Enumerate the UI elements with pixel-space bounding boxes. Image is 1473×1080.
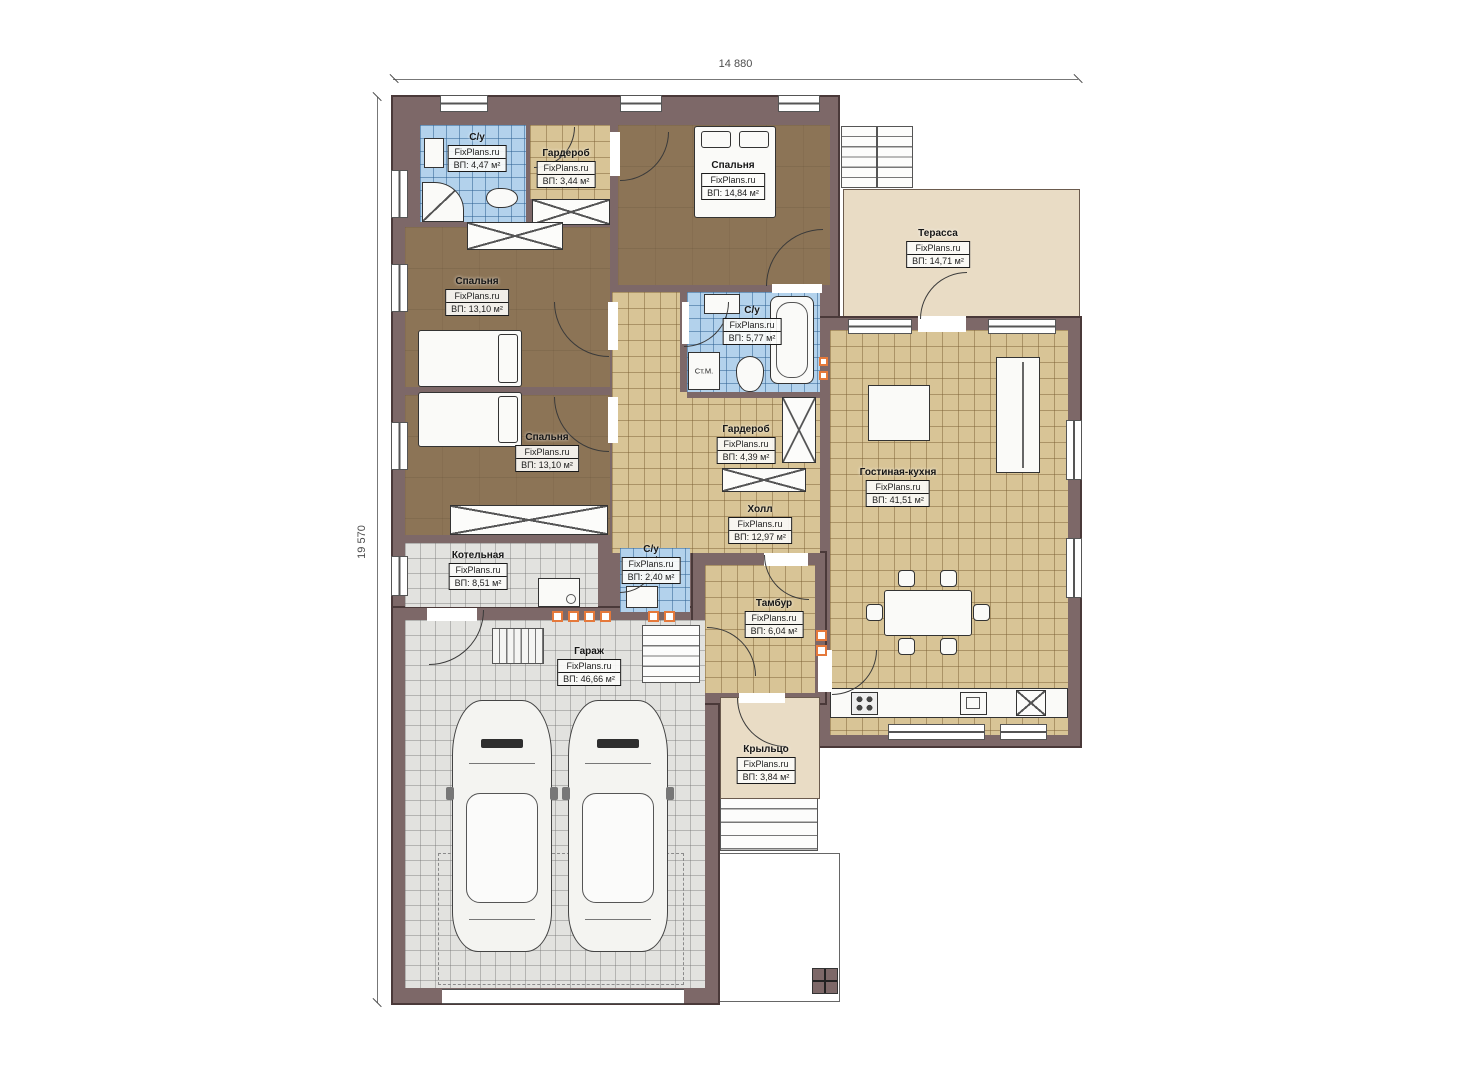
door-opening [610,132,620,176]
floor-plan-canvas: 14 880 19 570 [0,0,1473,1080]
watermark: FixPlans.ru [729,518,791,531]
terrace-stairs-rail [876,126,878,188]
door-opening [608,302,618,350]
chair [898,570,915,587]
vent [816,645,827,656]
car-mirror [550,787,558,800]
watermark: FixPlans.ru [450,564,507,577]
car-sunroof [481,739,523,748]
vent [819,357,828,366]
boiler-dial [566,594,576,604]
door-opening [608,397,618,443]
dimension-height-line [377,97,378,1003]
vent [664,611,675,622]
toilet [736,356,764,392]
room-label-bedroom-2: Спальня FixPlans.ruВП: 13,10 м² [515,432,579,473]
porch-stairs [720,795,818,851]
window [888,724,985,740]
watermark: FixPlans.ru [867,481,929,494]
closet [450,505,608,535]
car-windshield [585,763,651,764]
room-label-bathroom-3: С/у FixPlans.ruВП: 2,40 м² [622,544,681,585]
car-mirror [446,787,454,800]
stove [851,692,878,715]
room-label-garage: Гараж FixPlans.ruВП: 46,66 м² [557,646,621,687]
car-mirror [562,787,570,800]
room-label-bedroom-3: Спальня FixPlans.ruВП: 14,84 м² [701,160,765,201]
window [391,170,408,218]
chair [898,638,915,655]
room-label-bathroom-2: С/у FixPlans.ruВП: 5,77 м² [723,305,782,346]
window [778,95,820,112]
closet [782,397,816,463]
patio-column [812,968,838,994]
chair [940,570,957,587]
watermark: FixPlans.ru [558,660,620,673]
door-opening [818,650,832,692]
room-label-boiler-room: Котельная FixPlans.ruВП: 8,51 м² [449,550,508,591]
car-mirror [666,787,674,800]
window [1066,538,1082,598]
watermark: FixPlans.ru [449,146,506,159]
window [391,264,408,312]
watermark: FixPlans.ru [738,758,795,771]
window [1000,724,1047,740]
vent [552,611,563,622]
room-label-wardrobe-1: Гардероб FixPlans.ruВП: 3,44 м² [537,148,596,189]
window [391,556,408,596]
vent [648,611,659,622]
vent [584,611,595,622]
interior-stairs [642,625,700,683]
car-roof [466,793,538,903]
car [568,700,668,952]
room-label-living-kitchen: Гостиная-кухня FixPlans.ruВП: 41,51 м² [860,467,937,508]
watermark: FixPlans.ru [724,319,781,332]
garage-ladder [492,628,544,664]
washing-machine: Ст.М. [688,352,720,390]
pillow [701,131,731,148]
car-rear-line [469,919,535,920]
watermark: FixPlans.ru [446,290,508,303]
closet [722,468,806,492]
window [1066,420,1082,480]
dimension-width-line [393,79,1078,80]
pillow [739,131,769,148]
sofa-line [1022,362,1024,468]
washing-machine-label: Ст.М. [689,367,719,376]
kitchen-sink-basin [966,697,980,709]
vent [568,611,579,622]
window [620,95,662,112]
room-label-wardrobe-2: Гардероб FixPlans.ruВП: 4,39 м² [717,424,776,465]
closet [467,222,563,250]
window [440,95,488,112]
dimension-width-label: 14 880 [393,58,1078,70]
sofa [996,357,1040,473]
chair [866,604,883,621]
watermark: FixPlans.ru [746,612,803,625]
car [452,700,552,952]
room-label-vestibule: Тамбур FixPlans.ruВП: 6,04 м² [745,598,804,639]
watermark: FixPlans.ru [516,446,578,459]
vent [819,371,828,380]
dimension-height-label: 19 570 [356,525,368,559]
window [848,319,912,334]
vent [600,611,611,622]
dining-table [884,590,972,636]
watermark: FixPlans.ru [538,162,595,175]
chair [940,638,957,655]
room-label-terrace: Терасса FixPlans.ruВП: 14,71 м² [906,228,970,269]
room-label-hall: Холл FixPlans.ruВП: 12,97 м² [728,504,792,545]
garage-door-opening [442,989,684,1004]
window [988,319,1056,334]
toilet [486,188,518,208]
pillow [498,334,518,383]
sink [424,138,444,168]
room-label-porch: Крыльцо FixPlans.ruВП: 3,84 м² [737,744,796,785]
room-label-bedroom-1: Спальня FixPlans.ruВП: 13,10 м² [445,276,509,317]
car-roof [582,793,654,903]
window [391,422,408,470]
dishwasher [1016,690,1046,716]
watermark: FixPlans.ru [907,242,969,255]
room-label-bathroom-1: С/у FixPlans.ruВП: 4,47 м² [448,132,507,173]
watermark: FixPlans.ru [702,174,764,187]
chair [973,604,990,621]
kitchen-island [868,385,930,441]
car-windshield [469,763,535,764]
car-sunroof [597,739,639,748]
car-rear-line [585,919,651,920]
vent [816,630,827,641]
watermark: FixPlans.ru [718,438,775,451]
watermark: FixPlans.ru [623,558,680,571]
